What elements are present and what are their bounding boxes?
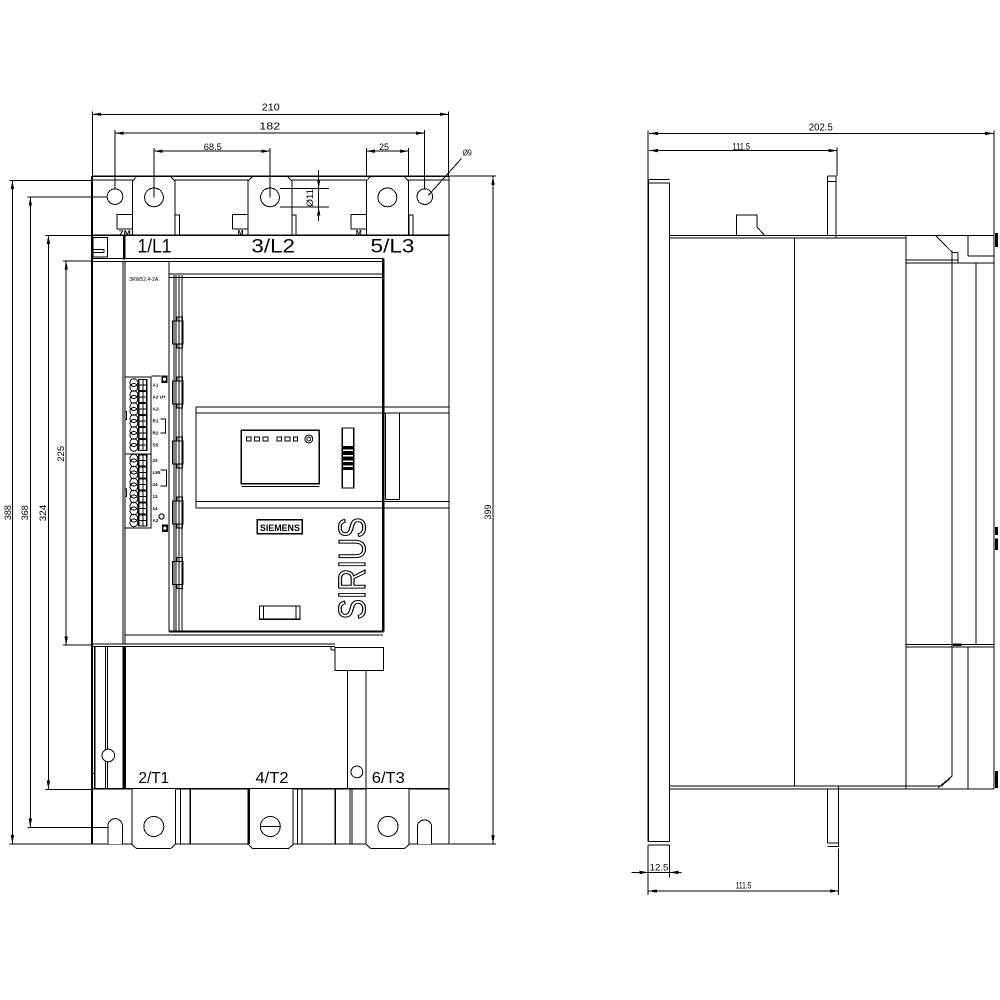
svg-text:L95: L95 bbox=[153, 470, 161, 475]
svg-text:Ø11: Ø11 bbox=[305, 189, 316, 207]
svg-text:324: 324 bbox=[38, 505, 48, 522]
svg-text:M: M bbox=[356, 230, 362, 237]
svg-text:210: 210 bbox=[262, 102, 280, 114]
svg-text:25: 25 bbox=[379, 142, 389, 152]
svg-text:A1: A1 bbox=[153, 383, 159, 388]
svg-text:368: 368 bbox=[20, 505, 30, 520]
svg-text:3/L2: 3/L2 bbox=[251, 236, 295, 257]
svg-text:111.5: 111.5 bbox=[736, 880, 752, 891]
svg-text:68.5: 68.5 bbox=[204, 142, 222, 152]
svg-text:388: 388 bbox=[3, 505, 13, 520]
svg-text:6/T3: 6/T3 bbox=[372, 770, 405, 787]
svg-text:1/L1: 1/L1 bbox=[138, 236, 172, 257]
svg-text:225: 225 bbox=[56, 446, 66, 462]
svg-text:13: 13 bbox=[153, 494, 159, 499]
svg-text:R1: R1 bbox=[153, 419, 159, 424]
svg-text:14: 14 bbox=[153, 506, 159, 511]
svg-text:399: 399 bbox=[483, 505, 493, 520]
svg-text:12.5: 12.5 bbox=[650, 863, 669, 874]
svg-text:5/L3: 5/L3 bbox=[371, 236, 415, 257]
svg-text:SIEMENS: SIEMENS bbox=[260, 523, 300, 533]
svg-text:Ø9: Ø9 bbox=[463, 148, 472, 157]
svg-text:111.5: 111.5 bbox=[733, 142, 751, 153]
svg-text:M: M bbox=[238, 230, 244, 237]
svg-text:R2: R2 bbox=[153, 431, 159, 436]
svg-text:4/T2: 4/T2 bbox=[256, 770, 289, 787]
svg-text:S5: S5 bbox=[153, 443, 159, 448]
svg-text:A2-: A2- bbox=[153, 407, 161, 412]
svg-text:24: 24 bbox=[153, 482, 159, 487]
svg-text:A2: A2 bbox=[153, 518, 159, 523]
svg-text:SIRIUS: SIRIUS bbox=[332, 518, 374, 620]
svg-text:23: 23 bbox=[153, 458, 159, 463]
svg-text:182: 182 bbox=[259, 120, 280, 132]
svg-text:202.5: 202.5 bbox=[809, 122, 833, 133]
svg-text:A2 U+: A2 U+ bbox=[153, 395, 166, 400]
svg-text:7M: 7M bbox=[119, 230, 131, 237]
svg-text:3RW52.4-2A.: 3RW52.4-2A. bbox=[129, 277, 160, 283]
svg-text:2/T1: 2/T1 bbox=[139, 770, 170, 787]
